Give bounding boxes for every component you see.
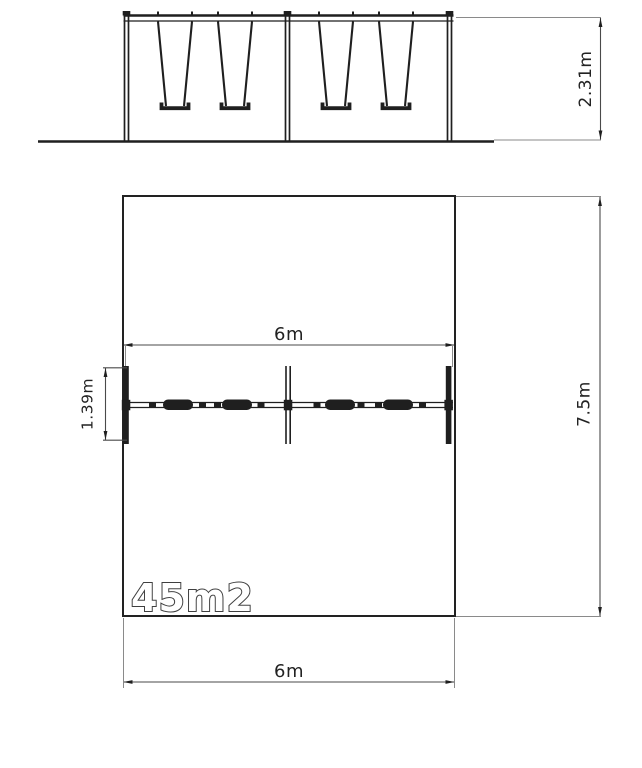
post-right xyxy=(446,11,454,141)
arrowhead-down-icon xyxy=(598,607,602,616)
dimension-label-height: 2.31m xyxy=(576,51,596,108)
rope xyxy=(158,22,166,107)
arrowhead-left-icon xyxy=(124,680,133,684)
beam-joint xyxy=(284,400,293,411)
seat-plan-2 xyxy=(222,400,252,411)
swing-2 xyxy=(218,22,252,109)
swing-4 xyxy=(379,22,413,109)
plan-view: 6m xyxy=(0,180,642,710)
arrowhead-up-icon xyxy=(104,368,108,377)
rope xyxy=(405,22,413,107)
seat-plan-4 xyxy=(383,400,413,411)
rope xyxy=(319,22,327,107)
rope xyxy=(184,22,192,107)
area-label: 45m2 xyxy=(131,576,254,620)
rope xyxy=(345,22,353,107)
dimension-plan-width-bottom: 6m xyxy=(124,618,455,688)
dimension-label-width-top: 6m xyxy=(274,324,304,345)
seat-plan-3 xyxy=(325,400,355,411)
arrowhead-up-icon xyxy=(599,18,603,27)
arrowhead-up-icon xyxy=(598,197,602,206)
arrowhead-down-icon xyxy=(104,431,108,440)
post-middle xyxy=(284,11,292,141)
drawing-canvas: 2.31m 6m xyxy=(0,0,642,768)
rope xyxy=(244,22,252,107)
dimension-label-frame-depth: 1.39m xyxy=(79,378,97,430)
dimension-plan-depth: 7.5m xyxy=(456,197,602,617)
dimension-label-width-bottom: 6m xyxy=(274,661,304,682)
dimension-frame-depth: 1.39m xyxy=(79,368,128,440)
rope xyxy=(218,22,226,107)
top-beam xyxy=(124,16,454,22)
post-left xyxy=(123,11,131,141)
dimension-elevation-height: 2.31m xyxy=(456,18,602,140)
rope xyxy=(379,22,387,107)
elevation-view: 2.31m xyxy=(0,0,642,175)
swing-3 xyxy=(319,22,353,109)
swing-1 xyxy=(158,22,192,109)
arrowhead-right-icon xyxy=(446,680,455,684)
arrowhead-down-icon xyxy=(599,131,603,140)
dimension-label-depth: 7.5m xyxy=(575,381,595,427)
seat-plan-1 xyxy=(163,400,193,411)
beam-joint xyxy=(444,400,453,411)
beam-joint xyxy=(122,400,131,411)
